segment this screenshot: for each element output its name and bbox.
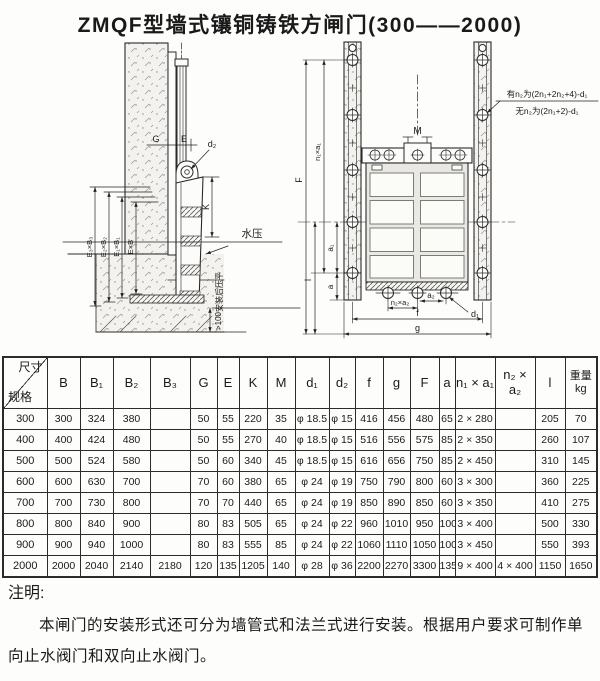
catalog-page: { "title": "ZMQF型墙式镶铜铸铁方闸门(300——2000)", … (0, 0, 600, 681)
spec-cell (495, 535, 535, 556)
spec-cell: 2180 (150, 556, 190, 578)
spec-cell (150, 472, 190, 493)
spec-cell: φ 18.5 (295, 451, 329, 472)
spec-cell: 2 × 280 (455, 409, 495, 430)
spec-cell: 700 (47, 493, 80, 514)
spec-cell: 225 (565, 472, 597, 493)
spec-cell: φ 19 (329, 493, 355, 514)
spec-cell: 145 (565, 451, 597, 472)
spec-cell: 3 × 400 (455, 514, 495, 535)
spec-cell (150, 451, 190, 472)
dim-label-e: E (181, 134, 187, 144)
spec-cell: 950 (410, 514, 439, 535)
spec-cell: φ 24 (295, 535, 329, 556)
spec-cell: 70 (190, 472, 217, 493)
spec-cell: φ 18.5 (295, 409, 329, 430)
spec-cell: 2140 (113, 556, 150, 578)
spec-cell: 2 × 450 (455, 451, 495, 472)
spec-cell: 65 (267, 514, 295, 535)
spec-cell: 1050 (410, 535, 439, 556)
dim-label-n2a2: n₂×a₂ (391, 298, 410, 307)
spec-cell (150, 493, 190, 514)
spec-cell: 3300 (410, 556, 439, 578)
spec-cell: 80 (190, 535, 217, 556)
spec-cell: 107 (565, 430, 597, 451)
header-cell: d₁ (295, 357, 329, 409)
spec-cell: 4 × 400 (495, 556, 535, 578)
sill (130, 295, 204, 303)
spec-cell: 1150 (535, 556, 565, 578)
header-cell: l (535, 357, 565, 409)
spec-cell: 50 (190, 409, 217, 430)
spec-cell: 900 (113, 514, 150, 535)
spec-cell: 1010 (383, 514, 410, 535)
dim-label-a1: a₁ (326, 244, 335, 251)
spec-cell (150, 409, 190, 430)
spec-cell: 100 (439, 535, 455, 556)
spec-cell: 750 (410, 451, 439, 472)
spec-cell: 556 (383, 430, 410, 451)
spec-cell: 3 × 450 (455, 535, 495, 556)
spec-cell: 324 (80, 409, 113, 430)
spec-cell: φ 15 (329, 430, 355, 451)
spec-cell: 630 (80, 472, 113, 493)
spec-cell: 300 (3, 409, 47, 430)
spec-row: 9009009401000808355585φ 24φ 221060111010… (3, 535, 597, 556)
spec-cell: 80 (190, 514, 217, 535)
dim-label-d2: d₂ (208, 139, 217, 149)
spec-cell: 70 (565, 409, 597, 430)
spec-cell: 960 (355, 514, 383, 535)
spec-cell: 410 (535, 493, 565, 514)
spec-cell: 2270 (383, 556, 410, 578)
spec-cell: 65 (439, 409, 455, 430)
header-cell: B₂ (113, 357, 150, 409)
spec-cell: 550 (535, 535, 565, 556)
min-depth-label: >100 (214, 311, 223, 330)
spec-cell: 60 (217, 472, 239, 493)
dim-label-k: K (201, 204, 211, 210)
spec-cell: 340 (239, 451, 267, 472)
spec-cell: 70 (190, 493, 217, 514)
spec-cell (495, 430, 535, 451)
spec-row: 400400424480505527040φ 18.5φ 15516556575… (3, 430, 597, 451)
spec-cell: 524 (80, 451, 113, 472)
spec-cell: 700 (3, 493, 47, 514)
spec-cell: 360 (535, 472, 565, 493)
spec-cell: 40 (267, 430, 295, 451)
spec-cell: 2000 (3, 556, 47, 578)
spec-cell: φ 19 (329, 472, 355, 493)
spec-cell: 600 (3, 472, 47, 493)
bolt-note-line2: 无n₂为(2n₁+2)-d₁ (515, 106, 578, 116)
spec-cell (150, 514, 190, 535)
spec-table: 尺寸规格BB₁B₂B₃GEKMd₁d₂fgFan₁ × a₁n₂ × a₂l重量… (2, 356, 598, 578)
wall-section (125, 43, 168, 254)
bolt-note-line1: 有n₂为(2n₁+2n₂+4)-d₁ (507, 89, 588, 99)
spec-cell: 3 × 350 (455, 493, 495, 514)
spec-cell: 850 (355, 493, 383, 514)
technical-drawings: G E d₂ K 水压 E₃×B₃ E₂×B₂ E₁×B (0, 40, 600, 354)
spec-cell: 1650 (565, 556, 597, 578)
spec-cell: 50 (190, 451, 217, 472)
spec-cell: 275 (565, 493, 597, 514)
spec-cell: 555 (239, 535, 267, 556)
spec-cell: 580 (113, 451, 150, 472)
header-cell: G (190, 357, 217, 409)
spec-row: 200020002040214021801201351205140φ 28φ 3… (3, 556, 597, 578)
spec-cell: φ 22 (329, 514, 355, 535)
spec-cell: φ 22 (329, 535, 355, 556)
spec-cell: 83 (217, 514, 239, 535)
spec-cell: 1205 (239, 556, 267, 578)
spec-cell: 1060 (355, 535, 383, 556)
notes-body: 本闸门的安装形式还可分为墙管式和法兰式进行安装。根据用户要求可制作单向止水阀门和… (8, 610, 592, 672)
dim-label-eb: E×B (126, 240, 135, 254)
header-cell: f (355, 357, 383, 409)
dim-label-l: l (303, 279, 313, 281)
spec-cell: 700 (113, 472, 150, 493)
header-cell: 重量 kg (565, 357, 597, 409)
spec-cell: 800 (410, 472, 439, 493)
spec-cell (495, 472, 535, 493)
flatten-note-label: 安装后压平 (214, 272, 224, 312)
spec-cell: 65 (267, 493, 295, 514)
spec-cell: 800 (3, 514, 47, 535)
stem (177, 66, 186, 174)
spec-cell: 260 (535, 430, 565, 451)
header-cell: B₃ (150, 357, 190, 409)
spec-cell: φ 15 (329, 451, 355, 472)
gate-top-beam (362, 143, 472, 163)
spec-cell: 456 (383, 409, 410, 430)
spec-cell: 2040 (80, 556, 113, 578)
spec-cell: φ 18.5 (295, 430, 329, 451)
spec-cell: 300 (47, 409, 80, 430)
spec-cell: 800 (47, 514, 80, 535)
spec-cell: 900 (3, 535, 47, 556)
spec-cell: φ 24 (295, 472, 329, 493)
spec-cell: 1110 (383, 535, 410, 556)
spec-cell: 205 (535, 409, 565, 430)
dim-label-a2: a₂ (427, 291, 435, 300)
header-cell: M (267, 357, 295, 409)
spec-cell: 135 (439, 556, 455, 578)
spec-cell: 55 (217, 430, 239, 451)
header-cell: d₂ (329, 357, 355, 409)
spec-cell: 800 (113, 493, 150, 514)
dim-label-e1b1: E₁×B₁ (112, 237, 121, 257)
gate-panel (366, 163, 468, 290)
header-cell: K (239, 357, 267, 409)
spec-cell: 330 (565, 514, 597, 535)
spec-cell: 100 (439, 514, 455, 535)
spec-cell: 50 (190, 430, 217, 451)
dim-label-m: M (413, 126, 421, 137)
spec-cell: 220 (239, 409, 267, 430)
spec-cell: 400 (47, 430, 80, 451)
spec-cell: 9 × 400 (455, 556, 495, 578)
spec-cell: 440 (239, 493, 267, 514)
dim-label-e2b2: E₂×B₂ (99, 237, 108, 257)
spec-cell: φ 15 (329, 409, 355, 430)
spec-row: 600600630700706038065φ 24φ 1975079080060… (3, 472, 597, 493)
water-pressure-label: 水压 (242, 228, 263, 240)
dim-label-n1a1: n₁×a₁ (313, 143, 322, 161)
ground-section (96, 254, 224, 332)
header-cell: B (47, 357, 80, 409)
spec-cell (495, 409, 535, 430)
spec-cell: 516 (355, 430, 383, 451)
spec-cell: 400 (3, 430, 47, 451)
spec-cell: 83 (217, 535, 239, 556)
notes-heading: 注明: (8, 580, 592, 608)
spec-cell: 3 × 300 (455, 472, 495, 493)
dim-label-f-width: f (416, 308, 419, 318)
spec-cell: 60 (439, 472, 455, 493)
header-cell: F (410, 357, 439, 409)
spec-row: 800800840900808350565φ 24φ 2296010109501… (3, 514, 597, 535)
header-cell: g (383, 357, 410, 409)
spec-cell (150, 535, 190, 556)
spec-row: 500500524580506034045φ 18.5φ 15616656750… (3, 451, 597, 472)
spec-cell (495, 451, 535, 472)
dim-label-e3b3: E₃×B₃ (85, 237, 94, 258)
spec-cell: φ 24 (295, 514, 329, 535)
spec-cell: 750 (355, 472, 383, 493)
dim-label-g-width: g (415, 323, 420, 333)
spec-cell: 575 (410, 430, 439, 451)
corner-label-size: 尺寸 (18, 361, 42, 375)
front-view-drawing: M (294, 42, 598, 338)
spec-row: 300300324380505522035φ 18.5φ 15416456480… (3, 409, 597, 430)
spec-cell: 45 (267, 451, 295, 472)
spec-cell: 500 (535, 514, 565, 535)
spec-cell: 85 (439, 430, 455, 451)
spec-cell: 890 (383, 493, 410, 514)
dim-label-g: G (152, 134, 159, 144)
dim-label-f-height: F (294, 177, 304, 183)
spec-cell: 940 (80, 535, 113, 556)
spec-cell: 416 (355, 409, 383, 430)
spec-cell: 65 (267, 472, 295, 493)
header-cell: n₂ × a₂ (495, 357, 535, 409)
spec-row: 700700730800707044065φ 24φ 1985089085060… (3, 493, 597, 514)
spec-cell: 140 (267, 556, 295, 578)
drawing-canvas: G E d₂ K 水压 E₃×B₃ E₂×B₂ E₁×B (0, 40, 600, 354)
spec-cell: 1000 (113, 535, 150, 556)
spec-cell: 85 (267, 535, 295, 556)
header-cell: E (217, 357, 239, 409)
notes-section: 注明: 本闸门的安装形式还可分为墙管式和法兰式进行安装。根据用户要求可制作单向止… (0, 578, 600, 672)
spec-cell (150, 430, 190, 451)
spec-cell: 850 (410, 493, 439, 514)
spec-cell: 730 (80, 493, 113, 514)
spec-cell (495, 493, 535, 514)
spec-cell: φ 24 (295, 493, 329, 514)
spec-cell: 380 (113, 409, 150, 430)
spec-cell: 2 × 350 (455, 430, 495, 451)
spec-cell: 505 (239, 514, 267, 535)
table-corner-cell: 尺寸规格 (3, 357, 47, 409)
spec-cell: 480 (113, 430, 150, 451)
frame-plate (168, 52, 176, 255)
spec-cell: 2000 (47, 556, 80, 578)
spec-cell: 600 (47, 472, 80, 493)
side-view-drawing: G E d₂ K 水压 E₃×B₃ E₂×B₂ E₁×B (63, 43, 300, 332)
corner-label-spec: 规格 (8, 391, 32, 405)
page-title: ZMQF型墙式镶铜铸铁方闸门(300——2000) (0, 0, 600, 40)
header-cell: a (439, 357, 455, 409)
spec-cell: 616 (355, 451, 383, 472)
dim-label-d1: d₁ (471, 309, 479, 319)
spec-cell: 480 (410, 409, 439, 430)
spec-cell: 120 (190, 556, 217, 578)
spec-cell: 840 (80, 514, 113, 535)
spec-cell: 900 (47, 535, 80, 556)
spec-cell: 70 (217, 493, 239, 514)
spec-cell: 270 (239, 430, 267, 451)
spec-cell (495, 514, 535, 535)
spec-cell: 135 (217, 556, 239, 578)
spec-cell: 424 (80, 430, 113, 451)
spec-cell: 85 (439, 451, 455, 472)
spec-cell: 55 (217, 409, 239, 430)
spec-cell: 60 (439, 493, 455, 514)
hinge-pin (181, 166, 193, 178)
header-cell: n₁ × a₁ (455, 357, 495, 409)
spec-cell: 790 (383, 472, 410, 493)
dim-label-a: a (326, 284, 335, 289)
header-cell: B₁ (80, 357, 113, 409)
spec-cell: 393 (565, 535, 597, 556)
spec-cell: 656 (383, 451, 410, 472)
spec-cell: 310 (535, 451, 565, 472)
spec-cell: φ 28 (295, 556, 329, 578)
spec-cell: 60 (217, 451, 239, 472)
spec-cell: 35 (267, 409, 295, 430)
bottom-bolts (376, 286, 458, 300)
spec-cell: 380 (239, 472, 267, 493)
spec-cell: 500 (47, 451, 80, 472)
spec-cell: φ 36 (329, 556, 355, 578)
spec-cell: 500 (3, 451, 47, 472)
spec-cell: 2200 (355, 556, 383, 578)
